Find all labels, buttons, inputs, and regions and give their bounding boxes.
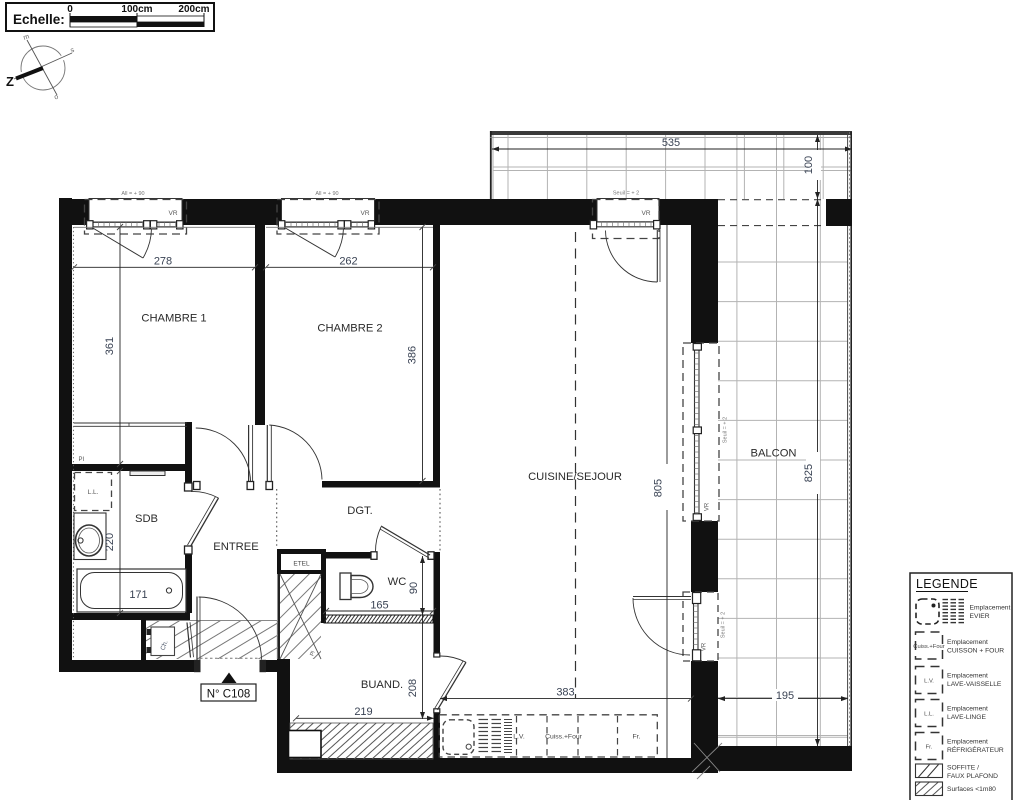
svg-text:VR: VR xyxy=(702,642,708,651)
svg-text:CHAMBRE 2: CHAMBRE 2 xyxy=(317,323,382,335)
svg-text:171: 171 xyxy=(129,589,147,601)
svg-text:195: 195 xyxy=(776,690,794,702)
svg-text:262: 262 xyxy=(339,256,357,268)
svg-text:WC: WC xyxy=(388,576,407,588)
svg-text:Seuil = + 2: Seuil = + 2 xyxy=(613,191,639,197)
svg-text:200cm: 200cm xyxy=(178,4,209,15)
svg-text:Cuiss.+Four: Cuiss.+Four xyxy=(913,644,944,650)
svg-text:Cuiss.+Four: Cuiss.+Four xyxy=(545,734,583,741)
svg-text:VR: VR xyxy=(641,210,650,217)
svg-text:805: 805 xyxy=(653,479,665,497)
svg-text:386: 386 xyxy=(407,346,419,364)
svg-text:Surfaces <1m80: Surfaces <1m80 xyxy=(947,786,996,793)
svg-text:All = + 90: All = + 90 xyxy=(315,191,338,197)
svg-text:Fr.: Fr. xyxy=(926,744,933,750)
svg-text:Emplacement: Emplacement xyxy=(947,739,988,746)
svg-text:LAVE-VAISSELLE: LAVE-VAISSELLE xyxy=(947,681,1002,688)
svg-text:Emplacement: Emplacement xyxy=(947,673,988,680)
svg-text:825: 825 xyxy=(803,464,815,482)
svg-text:LAVE-LINGE: LAVE-LINGE xyxy=(947,714,986,721)
svg-text:90: 90 xyxy=(408,582,420,594)
svg-text:BALCON: BALCON xyxy=(750,448,796,460)
svg-text:361: 361 xyxy=(104,337,116,355)
svg-text:L.V.: L.V. xyxy=(924,678,934,684)
svg-text:Seuil = + 2: Seuil = + 2 xyxy=(723,417,729,443)
svg-text:278: 278 xyxy=(154,256,172,268)
svg-text:CHAMBRE 1: CHAMBRE 1 xyxy=(141,313,206,325)
svg-text:VR: VR xyxy=(360,210,369,217)
svg-text:VR: VR xyxy=(168,210,177,217)
svg-text:Emplacement: Emplacement xyxy=(947,706,988,713)
svg-text:BUAND.: BUAND. xyxy=(361,679,403,691)
svg-text:LEGENDE: LEGENDE xyxy=(916,577,978,591)
svg-text:RÉFRIGÉRATEUR: RÉFRIGÉRATEUR xyxy=(947,745,1004,754)
svg-text:CUISINE/SEJOUR: CUISINE/SEJOUR xyxy=(528,471,622,483)
svg-text:0: 0 xyxy=(67,4,73,15)
svg-text:L.L.: L.L. xyxy=(924,711,934,717)
svg-text:All = + 90: All = + 90 xyxy=(121,191,144,197)
svg-text:535: 535 xyxy=(662,137,680,149)
svg-text:CUISSON + FOUR: CUISSON + FOUR xyxy=(947,648,1004,655)
svg-text:FAUX PLAFOND: FAUX PLAFOND xyxy=(947,773,998,780)
svg-text:100: 100 xyxy=(803,156,815,174)
svg-text:Seuil = + 2: Seuil = + 2 xyxy=(721,612,727,638)
svg-text:Emplacement: Emplacement xyxy=(947,639,988,646)
svg-text:383: 383 xyxy=(556,686,574,698)
svg-text:ETEL: ETEL xyxy=(293,561,310,568)
svg-text:Emplacement: Emplacement xyxy=(970,605,1011,612)
svg-text:165: 165 xyxy=(370,600,388,612)
svg-text:208: 208 xyxy=(407,679,419,697)
svg-text:L.V.: L.V. xyxy=(513,734,525,741)
svg-text:219: 219 xyxy=(354,706,372,718)
svg-text:N° C108: N° C108 xyxy=(207,688,251,700)
svg-text:PI: PI xyxy=(79,457,85,463)
svg-text:220: 220 xyxy=(104,533,116,551)
svg-text:Echelle:: Echelle: xyxy=(13,12,65,27)
svg-text:EVIER: EVIER xyxy=(970,613,990,620)
svg-text:ENTREE: ENTREE xyxy=(213,541,258,553)
svg-text:L.L.: L.L. xyxy=(88,489,99,496)
svg-text:DGT.: DGT. xyxy=(347,505,372,517)
svg-text:VR: VR xyxy=(705,502,711,511)
svg-text:Z: Z xyxy=(6,74,14,89)
svg-text:100cm: 100cm xyxy=(121,4,152,15)
svg-text:Fr.: Fr. xyxy=(633,734,641,741)
svg-text:SOFFITE /: SOFFITE / xyxy=(947,765,979,772)
svg-text:SDB: SDB xyxy=(135,513,158,525)
